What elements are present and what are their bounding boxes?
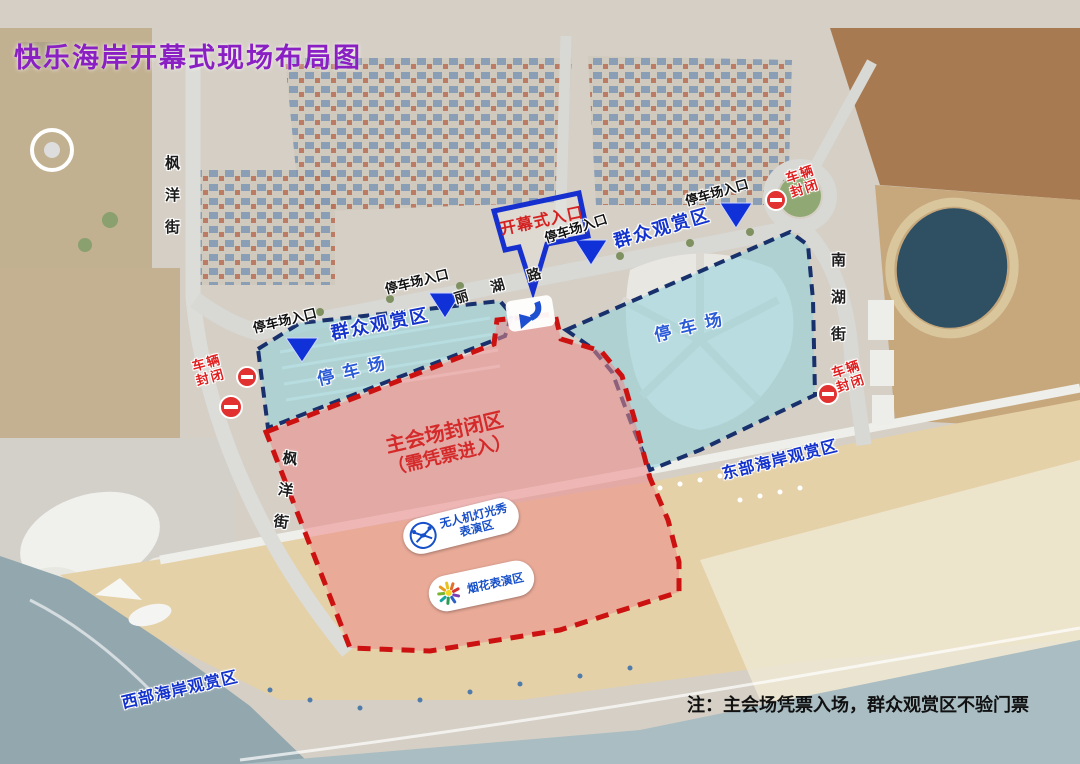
page-title: 快乐海岸开幕式现场布局图 bbox=[14, 36, 362, 75]
site-layout-map: 快乐海岸开幕式现场布局图 枫洋街 枫洋街 南湖街 丽湖路 停车场入口 停车场入口… bbox=[0, 0, 1080, 764]
fireworks-icon bbox=[432, 576, 465, 609]
ticket-note: 注：主会场凭票入场，群众观赏区不验门票 bbox=[687, 691, 1029, 717]
zone-overlays bbox=[0, 0, 1080, 764]
no-entry-icon bbox=[237, 367, 257, 387]
street-fengyang-north: 枫洋街 bbox=[162, 155, 183, 251]
entrance-triangle-icon bbox=[720, 203, 752, 228]
no-entry-icon bbox=[220, 396, 242, 418]
street-nanhu: 南湖街 bbox=[828, 252, 849, 363]
no-entry-icon bbox=[818, 384, 838, 404]
fireworks-text: 烟花表演区 bbox=[466, 571, 525, 596]
drone-icon bbox=[406, 518, 440, 552]
no-entry-icon bbox=[766, 190, 786, 210]
entrance-triangle-icon bbox=[575, 240, 607, 265]
